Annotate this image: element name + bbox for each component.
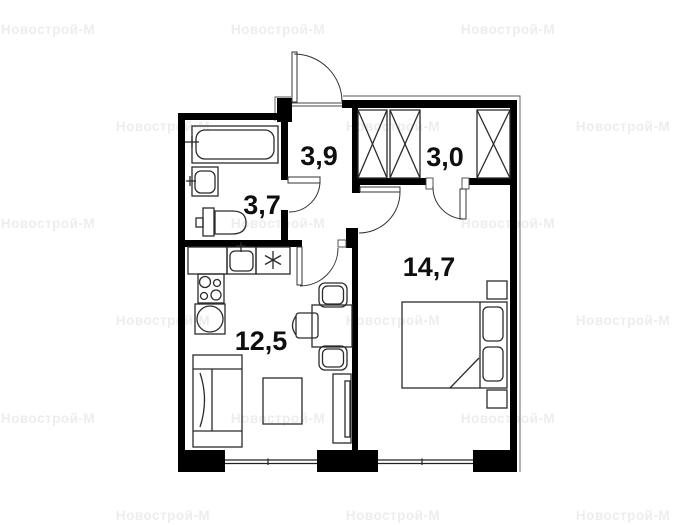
stove	[198, 274, 224, 303]
watermark-text: Новострой-М	[231, 22, 325, 37]
dining-chair	[319, 283, 347, 307]
wall-bathroom-east	[281, 120, 288, 180]
pillow	[483, 347, 503, 381]
bathroom-door-swing-arc	[289, 181, 320, 212]
pillow	[483, 307, 503, 341]
wall-bottom-center-pier	[317, 450, 378, 472]
wall-bottom-left-pier	[178, 450, 225, 472]
wall-bathroom-east-lower	[281, 210, 288, 242]
dining-chair	[293, 313, 319, 338]
wall-bottom-right-pier	[473, 450, 517, 472]
room-label-bathroom: 3,7	[243, 190, 281, 220]
wall-top-right	[342, 100, 517, 108]
kitchen-sink	[227, 242, 256, 274]
bedroom-furniture	[402, 281, 507, 408]
watermark-text: Новострой-М	[116, 508, 210, 523]
room-label-bedroom: 14,7	[403, 252, 456, 282]
watermark-text: Новострой-М	[461, 216, 555, 231]
watermark-text: Новострой-М	[1, 411, 95, 426]
bedside-table	[487, 390, 507, 408]
kitchen-counter	[188, 247, 227, 274]
bedroom-door-swing-arc	[359, 192, 400, 233]
wall-corner-block	[346, 228, 358, 248]
room-label-hallway: 3,9	[300, 141, 338, 171]
bedroom-door-leaf	[360, 187, 400, 192]
watermark-text: Новострой-М	[1, 216, 95, 231]
wall-top-left	[178, 113, 277, 120]
wall-closet-south-left	[352, 178, 426, 185]
wall-bedroom-door-post	[352, 185, 360, 193]
tv	[345, 381, 350, 437]
watermark-layer: Новострой-М Новострой-М Новострой-М Ново…	[1, 22, 670, 523]
watermark-text: Новострой-М	[116, 313, 210, 328]
kitchen-door-swing-arc	[300, 248, 338, 286]
asterisk-icon	[265, 251, 281, 269]
washbasin	[186, 167, 218, 196]
watermark-text: Новострой-М	[461, 411, 555, 426]
watermark-text: Новострой-М	[346, 313, 440, 328]
wall-hallway-east	[352, 108, 358, 178]
watermark-text: Новострой-М	[346, 508, 440, 523]
watermark-text: Новострой-М	[461, 22, 555, 37]
watermark-text: Новострой-М	[346, 119, 440, 134]
kitchen-door-jamb	[338, 240, 346, 247]
closet-door-leaf	[460, 189, 466, 219]
tv-stand	[333, 374, 351, 443]
entry-door-swing-arc	[294, 54, 342, 102]
kitchen-door-leaf	[297, 247, 302, 285]
blanket-fold	[450, 358, 479, 388]
dining-chair	[319, 346, 347, 370]
closet-door-swing-arc	[433, 186, 463, 219]
watermark-text: Новострой-М	[576, 508, 670, 523]
room-label-closet: 3,0	[426, 142, 464, 172]
entry-door-leaf	[292, 52, 297, 102]
wardrobe-unit	[477, 110, 510, 178]
room-label-kitchen-living: 12,5	[235, 326, 288, 356]
wall-right	[510, 100, 517, 472]
wall-left	[178, 113, 185, 472]
bathroom-door-leaf	[288, 177, 320, 183]
watermark-text: Новострой-М	[576, 313, 670, 328]
bedside-table	[487, 281, 507, 299]
wall-partition-living-bedroom	[352, 246, 358, 452]
bathtub	[185, 126, 278, 163]
watermark-text: Новострой-М	[1, 22, 95, 37]
wall-entry-step	[277, 98, 292, 122]
sofa	[193, 355, 242, 447]
floor-plan: Новострой-М Новострой-М Новострой-М Ново…	[0, 0, 700, 525]
wall-closet-south-right	[469, 178, 510, 185]
entry-threshold	[292, 103, 342, 106]
closet-door-jamb-right	[462, 178, 469, 189]
watermark-text: Новострой-М	[576, 119, 670, 134]
appliance-slot	[256, 247, 290, 274]
closet-door-jamb-left	[426, 178, 433, 189]
